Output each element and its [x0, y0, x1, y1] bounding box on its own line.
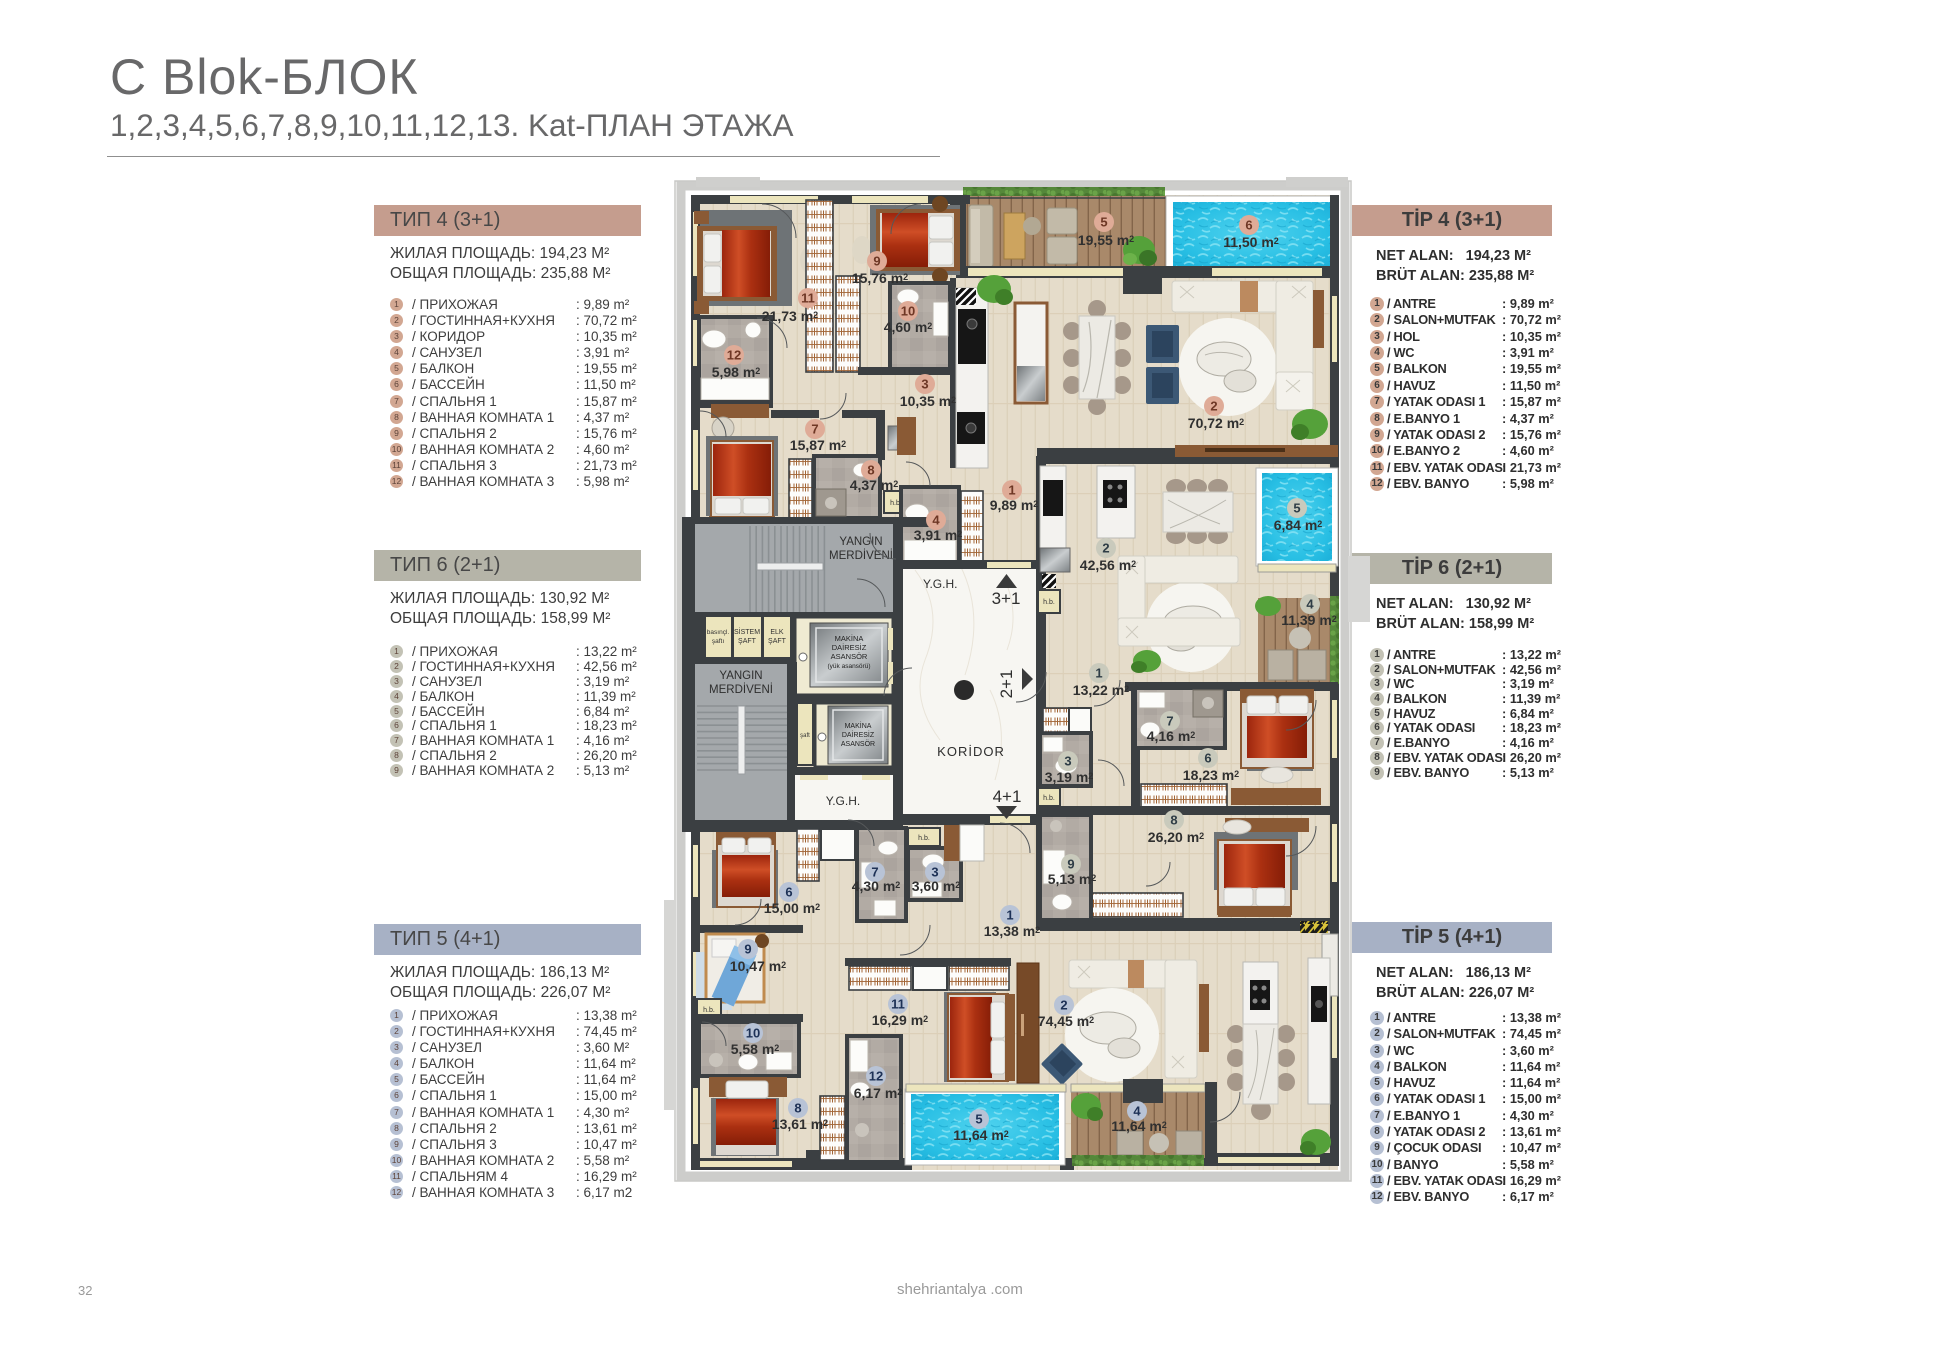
svg-text:4: 4 — [932, 513, 940, 528]
svg-text:ŞAFT: ŞAFT — [738, 638, 757, 645]
svg-text:Y.G.H.: Y.G.H. — [923, 577, 957, 591]
svg-text:3,91 m2: 3,91 m2 — [914, 527, 963, 543]
svg-text:3: 3 — [921, 377, 928, 392]
svg-text:MAKİNA: MAKİNA — [845, 721, 872, 730]
svg-text:3: 3 — [1064, 754, 1071, 769]
svg-text:9: 9 — [873, 254, 880, 269]
svg-text:1: 1 — [1008, 483, 1015, 498]
svg-text:7: 7 — [1166, 714, 1173, 729]
svg-text:11: 11 — [801, 291, 815, 306]
svg-text:MERDİVENİ: MERDİVENİ — [709, 683, 773, 696]
svg-text:KORİDOR: KORİDOR — [937, 744, 1005, 759]
svg-text:15,87 m2: 15,87 m2 — [790, 437, 846, 453]
svg-text:DAİRESİZ: DAİRESİZ — [842, 730, 875, 739]
svg-text:1: 1 — [1006, 908, 1013, 923]
svg-text:5: 5 — [975, 1112, 982, 1127]
svg-text:15,76 m2: 15,76 m2 — [852, 270, 908, 286]
svg-text:6: 6 — [1204, 751, 1211, 766]
svg-text:4,37 m2: 4,37 m2 — [850, 477, 899, 493]
svg-text:21,73 m2: 21,73 m2 — [762, 308, 818, 324]
svg-text:3,60 m2: 3,60 m2 — [912, 878, 961, 894]
svg-text:YANGIN: YANGIN — [719, 670, 762, 682]
svg-text:SİSTEM: SİSTEM — [734, 627, 760, 636]
svg-text:ASANSÖR: ASANSÖR — [841, 740, 875, 748]
svg-text:6,17 m2: 6,17 m2 — [854, 1085, 903, 1101]
svg-text:MAKİNA: MAKİNA — [835, 634, 864, 643]
svg-text:16,29 m2: 16,29 m2 — [872, 1012, 928, 1028]
svg-text:7: 7 — [811, 422, 818, 437]
svg-text:5,13 m2: 5,13 m2 — [1048, 871, 1097, 887]
svg-text:5: 5 — [1100, 215, 1107, 230]
svg-text:10: 10 — [901, 304, 915, 319]
svg-text:2: 2 — [1060, 998, 1067, 1013]
svg-text:10: 10 — [746, 1026, 760, 1041]
svg-text:11,64 m2: 11,64 m2 — [1111, 1118, 1167, 1134]
svg-text:ŞAFT: ŞAFT — [768, 638, 787, 645]
svg-text:26,20 m2: 26,20 m2 — [1148, 829, 1204, 845]
svg-text:12: 12 — [727, 348, 741, 363]
svg-text:4,60 m2: 4,60 m2 — [884, 319, 933, 335]
svg-text:15,00 m2: 15,00 m2 — [764, 900, 820, 916]
svg-text:9,89 m2: 9,89 m2 — [990, 497, 1039, 513]
svg-text:13,38 m2: 13,38 m2 — [984, 923, 1040, 939]
svg-text:(yük asansörü): (yük asansörü) — [828, 663, 871, 670]
svg-text:3+1: 3+1 — [992, 589, 1021, 608]
svg-text:4,16 m2: 4,16 m2 — [1147, 728, 1196, 744]
svg-text:5: 5 — [1293, 501, 1300, 516]
svg-text:13,61 m2: 13,61 m2 — [772, 1116, 828, 1132]
svg-text:5,98 m2: 5,98 m2 — [712, 364, 761, 380]
svg-text:11,64 m2: 11,64 m2 — [953, 1127, 1009, 1143]
svg-text:4,30 m2: 4,30 m2 — [852, 878, 901, 894]
svg-text:ASANSÖR: ASANSÖR — [831, 652, 868, 661]
svg-text:42,56 m2: 42,56 m2 — [1080, 557, 1136, 573]
svg-text:13,22 m2: 13,22 m2 — [1073, 682, 1129, 698]
svg-text:12: 12 — [869, 1069, 883, 1084]
svg-text:5,58 m2: 5,58 m2 — [731, 1041, 780, 1057]
svg-text:11,50 m2: 11,50 m2 — [1223, 234, 1279, 250]
svg-text:8: 8 — [867, 463, 874, 478]
svg-text:6,84 m2: 6,84 m2 — [1274, 517, 1323, 533]
svg-text:9: 9 — [744, 942, 751, 957]
svg-text:1: 1 — [1095, 666, 1102, 681]
svg-text:2: 2 — [1210, 399, 1217, 414]
svg-text:74,45 m2: 74,45 m2 — [1038, 1013, 1094, 1029]
svg-text:2+1: 2+1 — [997, 670, 1016, 699]
svg-text:6: 6 — [785, 885, 792, 900]
svg-text:70,72 m2: 70,72 m2 — [1188, 415, 1244, 431]
svg-text:4: 4 — [1133, 1104, 1141, 1119]
svg-text:4: 4 — [1306, 597, 1314, 612]
svg-text:YANGIN: YANGIN — [839, 536, 882, 548]
svg-text:h.b.: h.b. — [918, 835, 930, 842]
svg-text:8: 8 — [794, 1101, 801, 1116]
svg-text:8: 8 — [1170, 813, 1177, 828]
svg-text:2: 2 — [1102, 541, 1109, 556]
svg-text:19,55 m2: 19,55 m2 — [1078, 232, 1134, 248]
svg-text:basınçl.: basınçl. — [707, 629, 730, 636]
svg-text:h.b.: h.b. — [1043, 599, 1055, 606]
svg-text:h.b.: h.b. — [703, 1007, 715, 1014]
svg-text:Y.G.H.: Y.G.H. — [826, 794, 860, 808]
svg-text:3,19 m2: 3,19 m2 — [1045, 769, 1094, 785]
svg-text:şaftı: şaftı — [712, 638, 724, 645]
svg-text:18,23 m2: 18,23 m2 — [1183, 767, 1239, 783]
svg-text:4+1: 4+1 — [993, 787, 1022, 806]
svg-text:ELK: ELK — [770, 629, 784, 636]
svg-text:DAİRESİZ: DAİRESİZ — [832, 643, 867, 652]
svg-text:9: 9 — [1067, 857, 1074, 872]
svg-text:6: 6 — [1245, 218, 1252, 233]
svg-text:şaft: şaft — [800, 733, 810, 739]
svg-text:10,47 m2: 10,47 m2 — [730, 958, 786, 974]
svg-text:11,39 m2: 11,39 m2 — [1281, 612, 1337, 628]
svg-text:h.b.: h.b. — [1043, 795, 1055, 802]
svg-text:10,35 m2: 10,35 m2 — [900, 393, 956, 409]
svg-text:11: 11 — [891, 997, 905, 1012]
